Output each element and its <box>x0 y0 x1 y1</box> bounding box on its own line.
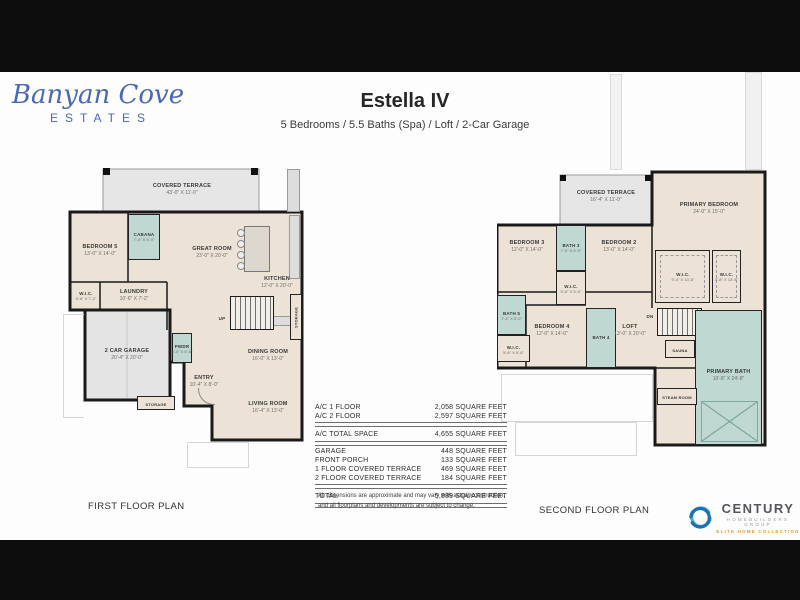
bar-stool <box>237 251 245 259</box>
terrace-post <box>251 168 258 175</box>
letterbox-bottom <box>0 540 800 600</box>
row-label: A/C 2 FLOOR <box>315 413 361 420</box>
table-row: 1 FLOOR COVERED TERRACE 469 SQUARE FEET <box>315 465 507 474</box>
table-divider <box>315 441 507 446</box>
bar-stool <box>237 240 245 248</box>
terrace-post <box>560 175 566 181</box>
page-title: Estella IV <box>255 90 555 113</box>
table-row: GARAGE 448 SQUARE FEET <box>315 447 507 456</box>
driveway-outline <box>63 314 84 418</box>
row-label: A/C TOTAL SPACE <box>315 431 378 438</box>
row-value: 469 SQUARE FEET <box>441 466 507 473</box>
row-label: FRONT PORCH <box>315 457 368 464</box>
table-row-total-ac: A/C TOTAL SPACE 4,655 SQUARE FEET <box>315 428 507 440</box>
brand-tagline: ESTATES <box>8 111 188 125</box>
table-row: A/C 1 FLOOR 2,058 SQUARE FEET <box>315 403 507 412</box>
row-label: GARAGE <box>315 448 346 455</box>
century-logo: CENTURY HOMEBUILDERS GROUP ELITE HOME CO… <box>688 502 800 535</box>
kitchen-island <box>244 226 270 272</box>
room-wic-bed4: W.I.C. 5'-8" X 5'-8" <box>497 335 530 362</box>
row-value: 2,058 SQUARE FEET <box>435 404 507 411</box>
room-bath-4: BATH 4 <box>586 308 616 368</box>
summer-kitchen-counter <box>287 169 300 212</box>
row-value: 133 SQUARE FEET <box>441 457 507 464</box>
roof-outline <box>515 422 637 456</box>
century-text-block: CENTURY HOMEBUILDERS GROUP ELITE HOME CO… <box>716 502 800 534</box>
room-cabana-bath: CABANA 7'-4" X 5'-0" <box>128 214 160 260</box>
room-steam: STEAM ROOM <box>657 388 697 405</box>
stairs-up <box>230 296 274 330</box>
room-wic-hall: W.I.C. 5'-8" X 5'-0" <box>556 271 586 305</box>
bath-hatch-area <box>701 401 758 442</box>
bar-stool <box>237 262 245 270</box>
table-divider <box>315 484 507 489</box>
table-row: FRONT PORCH 133 SQUARE FEET <box>315 456 507 465</box>
century-swirl-icon <box>688 505 713 535</box>
letterbox-top <box>0 0 800 72</box>
room-wic-primary-a: W.I.C. 9'-4" X 13'-8" <box>655 250 710 303</box>
brand-logo: Banyan Cove ESTATES <box>8 80 188 125</box>
room-storage-stairs: STORAGE <box>290 294 302 340</box>
room-primary-bath: PRIMARY BATH 10'-8" X 24'-8" <box>695 310 762 445</box>
caption-second-floor: SECOND FLOOR PLAN <box>539 505 649 516</box>
front-porch-outline <box>187 442 249 468</box>
terrace-post <box>645 175 651 181</box>
terrace-post <box>103 168 110 175</box>
century-name: CENTURY <box>716 502 800 515</box>
room-bath-3: BATH 3 7'-0" X 5'-0" <box>556 225 586 271</box>
table-row: A/C 2 FLOOR 2,597 SQUARE FEET <box>315 412 507 421</box>
row-label: 1 FLOOR COVERED TERRACE <box>315 466 421 473</box>
table-row: 2 FLOOR COVERED TERRACE 184 SQUARE FEET <box>315 474 507 483</box>
row-label: 2 FLOOR COVERED TERRACE <box>315 475 421 482</box>
row-value: 184 SQUARE FEET <box>441 475 507 482</box>
row-value: 4,655 SQUARE FEET <box>435 431 507 438</box>
century-group: HOMEBUILDERS GROUP <box>716 517 800 527</box>
disclaimer-text: All dimensions are approximate and may v… <box>318 492 508 512</box>
table-divider <box>315 422 507 427</box>
century-collection: ELITE HOME COLLECTION <box>716 529 800 534</box>
row-value: 2,597 SQUARE FEET <box>435 413 507 420</box>
first-floor-plan: COVERED TERRACE 43'-0" X 11'-0" GREAT RO… <box>62 166 312 474</box>
plan-edge-strip <box>610 74 622 170</box>
room-sauna: SAUNA <box>665 340 695 358</box>
room-wic-primary-b: W.I.C. 3'-8" X 13'-8" <box>712 250 741 303</box>
flyer-page: Banyan Cove ESTATES Estella IV 5 Bedroom… <box>0 72 800 540</box>
kitchen-counter <box>289 215 300 279</box>
second-floor-plan: COVERED TERRACE 16'-4" X 11'-0" PRIMARY … <box>497 168 769 476</box>
room-powder: PWDR 5'-0" X 5'-6" <box>172 333 192 363</box>
caption-first-floor: FIRST FLOOR PLAN <box>88 501 185 512</box>
plan-edge-strip <box>745 72 762 170</box>
page-subtitle: 5 Bedrooms / 5.5 Baths (Spa) / Loft / 2-… <box>205 119 605 131</box>
room-bath-5: BATH 5 7'-4" X 5'-0" <box>497 295 526 335</box>
row-value: 448 SQUARE FEET <box>441 448 507 455</box>
room-storage-garage: STORAGE <box>137 396 175 410</box>
roof-outline <box>501 374 653 422</box>
brand-script-name: Banyan Cove <box>8 80 188 110</box>
bar-stool <box>237 229 245 237</box>
row-label: A/C 1 FLOOR <box>315 404 361 411</box>
